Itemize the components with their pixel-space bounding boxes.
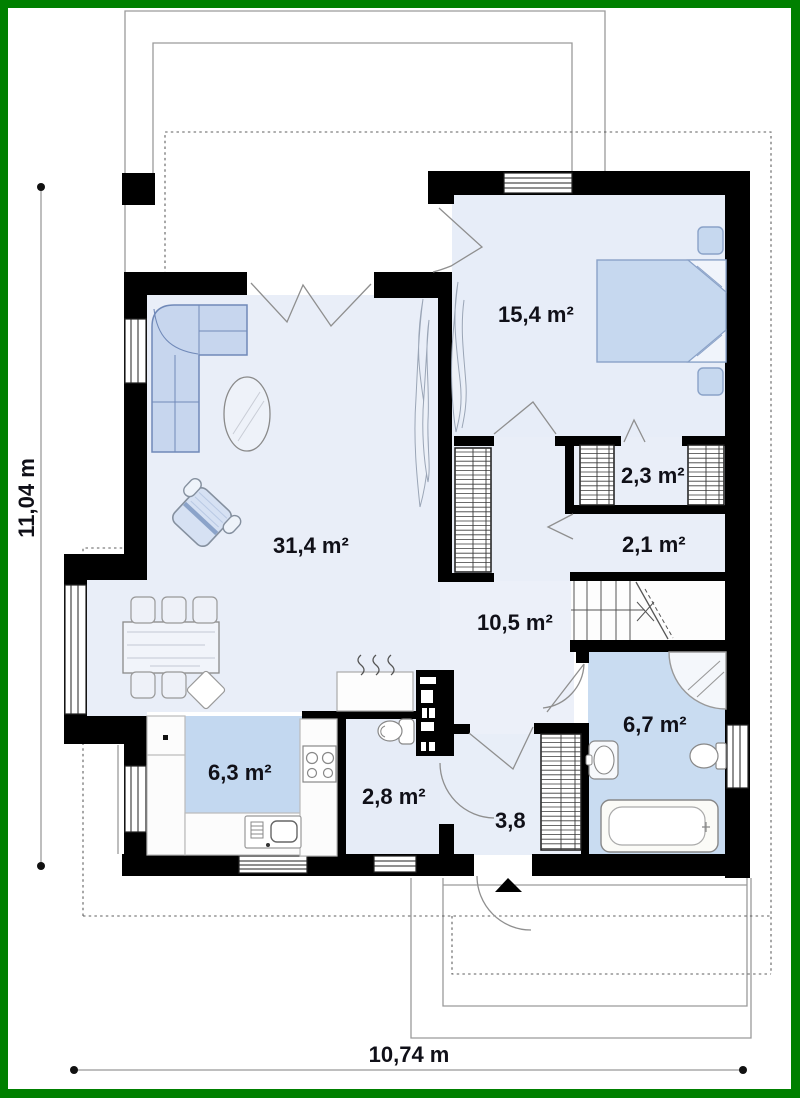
svg-text:11,04 m: 11,04 m <box>14 458 39 538</box>
svg-text:2,8 m²: 2,8 m² <box>362 784 426 809</box>
svg-text:10,74 m: 10,74 m <box>369 1042 450 1067</box>
svg-text:2,1 m²: 2,1 m² <box>622 532 686 557</box>
svg-text:6,7 m²: 6,7 m² <box>623 712 687 737</box>
svg-text:31,4 m²: 31,4 m² <box>273 533 349 558</box>
svg-text:6,3 m²: 6,3 m² <box>208 760 272 785</box>
svg-text:3,8: 3,8 <box>495 808 526 833</box>
svg-text:10,5 m²: 10,5 m² <box>477 610 553 635</box>
svg-text:15,4 m²: 15,4 m² <box>498 302 574 327</box>
svg-text:2,3 m²: 2,3 m² <box>621 463 685 488</box>
